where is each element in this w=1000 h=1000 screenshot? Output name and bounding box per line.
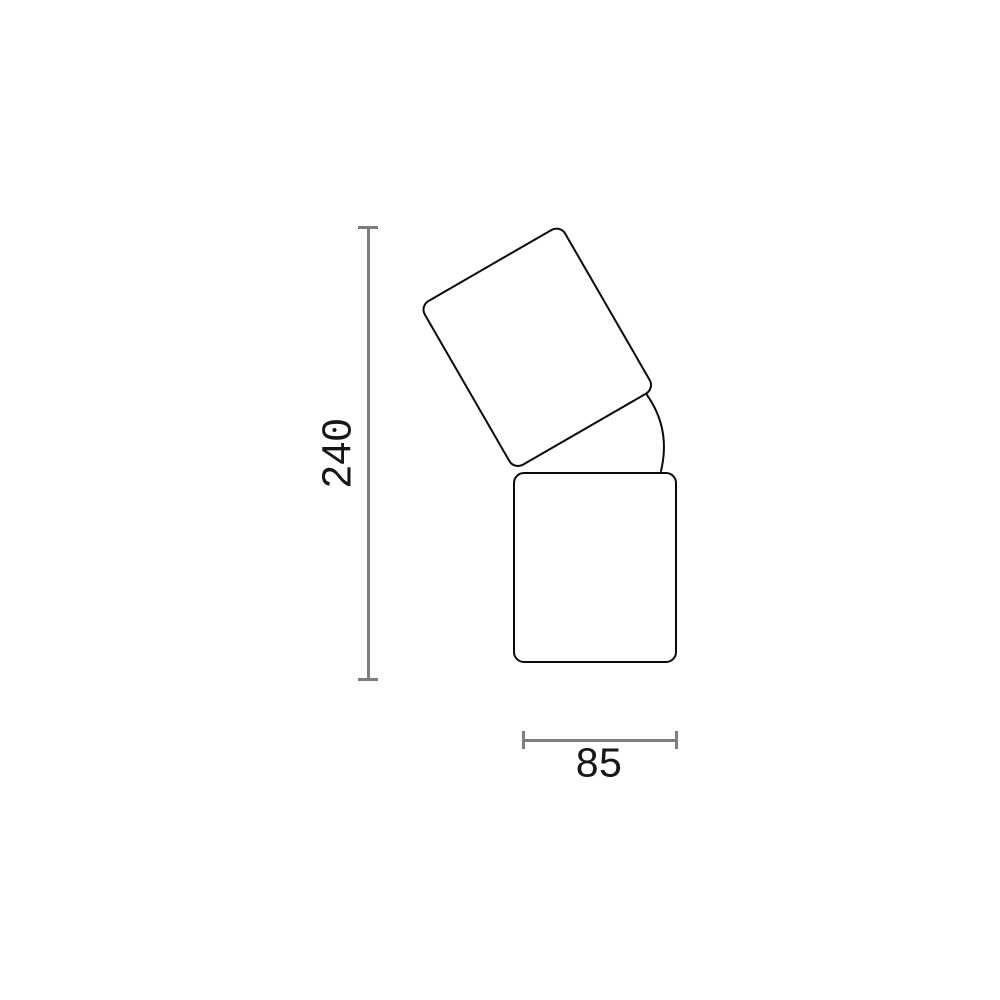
- lamp-base-outline: [513, 472, 677, 663]
- width-value-text: 85: [576, 740, 623, 786]
- dimension-drawing: 240 85: [0, 0, 1000, 1000]
- width-dimension-label: 85: [576, 743, 623, 784]
- tilt-arc-path: [647, 395, 664, 471]
- height-dimension-line: [367, 227, 371, 679]
- height-dimension-bottom-tick: [358, 678, 378, 682]
- height-dimension-label: 240: [317, 418, 358, 488]
- width-dimension-left-tick: [522, 731, 526, 749]
- zero-center-dot: [333, 428, 337, 432]
- height-dimension-top-tick: [358, 226, 378, 230]
- width-dimension-right-tick: [675, 731, 679, 749]
- tilt-arc: [0, 0, 1000, 1000]
- lamp-head-outline: [419, 224, 657, 471]
